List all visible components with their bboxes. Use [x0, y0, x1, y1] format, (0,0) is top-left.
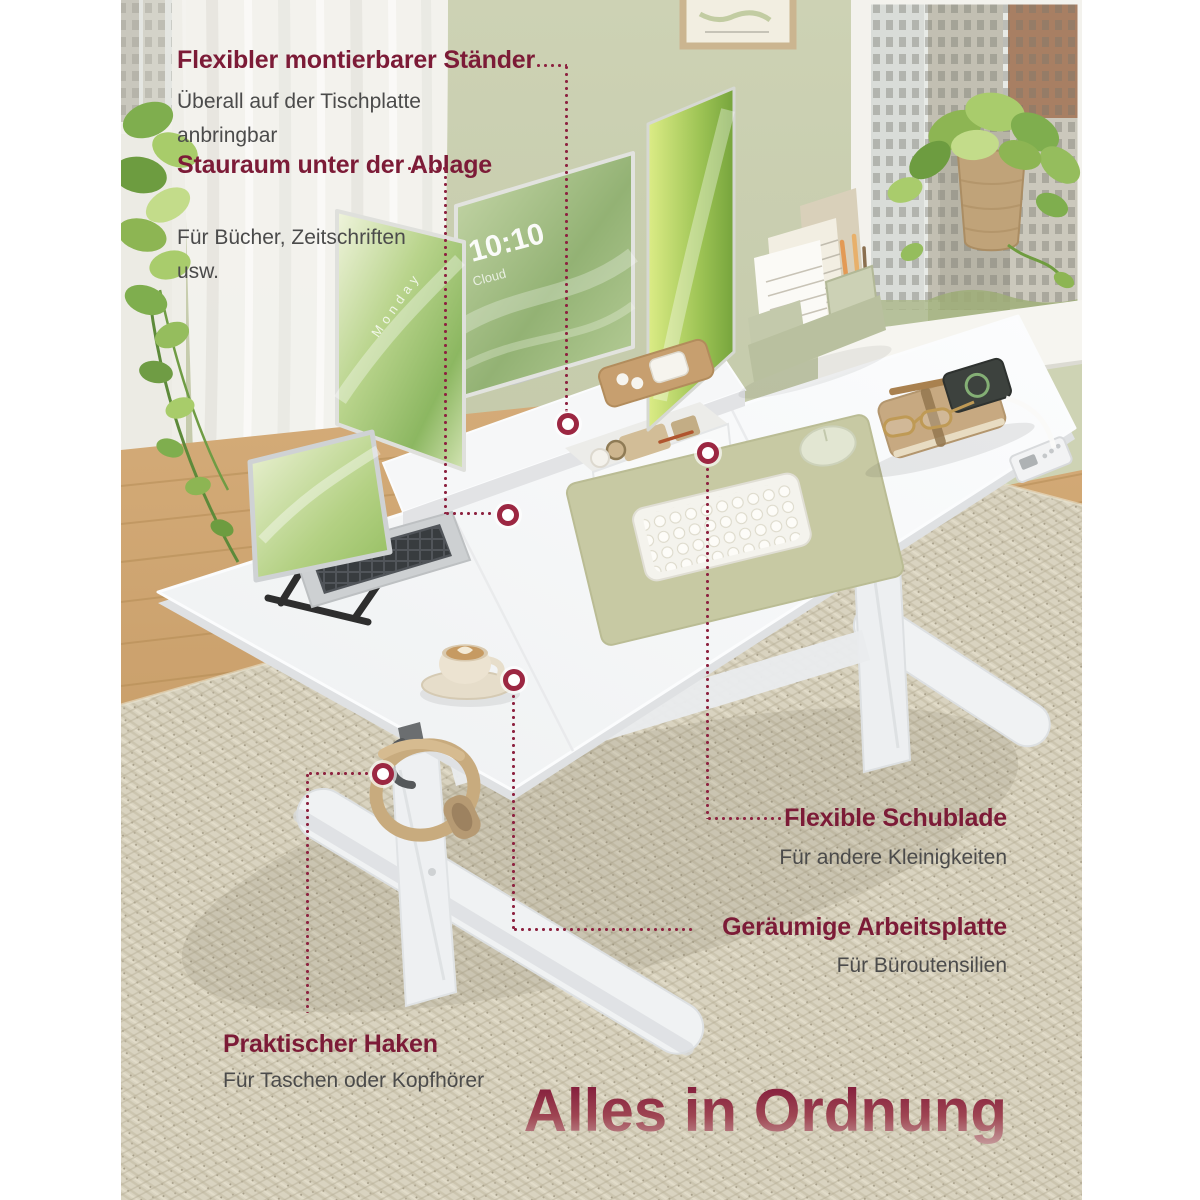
callout-stand-line-v [565, 64, 568, 414]
product-infographic: 10:10 Cloud Monday [0, 0, 1200, 1200]
callout-drawer-title: Flexible Schublade [784, 802, 1007, 835]
callout-marker-drawer-icon [697, 442, 719, 464]
callout-storage-line-h1 [406, 167, 446, 170]
callout-stand-title: Flexibler montierbarer Ständer [177, 44, 535, 77]
callout-hook-title: Praktischer Haken [223, 1028, 438, 1061]
callout-drawer-subtitle: Für andere Kleinigkeiten [779, 841, 1007, 875]
callout-drawer-line-h [706, 817, 782, 820]
callout-marker-worktop-icon [503, 669, 525, 691]
callout-storage-line-h2 [444, 512, 494, 515]
callout-hook-line-h [307, 772, 372, 775]
callout-storage-title: Stauraum unter der Ablage [177, 149, 497, 182]
callout-worktop-subtitle: Für Büroutensilien [837, 949, 1007, 983]
callout-marker-storage-icon [497, 504, 519, 526]
callout-storage-subtitle: Für Bücher, Zeitschriften usw. [177, 221, 417, 289]
callout-stand-subtitle: Überall auf der Tischplatte anbringbar [177, 85, 477, 153]
headline: Alles in Ordnung [524, 1076, 1007, 1145]
callout-marker-hook-icon [372, 763, 394, 785]
callout-worktop-line-h [512, 928, 695, 931]
callout-hook-subtitle: Für Taschen oder Kopfhörer [223, 1064, 484, 1098]
callout-hook-line-v [306, 772, 309, 1013]
callout-worktop-line-v [512, 693, 515, 930]
callout-drawer-line-v [706, 466, 709, 819]
callout-storage-line-v [444, 167, 447, 514]
callout-stand-line-h [535, 64, 567, 67]
picture-frame [683, 0, 793, 46]
callout-marker-stand-icon [557, 413, 579, 435]
callout-worktop-title: Geräumige Arbeitsplatte [722, 911, 1007, 944]
